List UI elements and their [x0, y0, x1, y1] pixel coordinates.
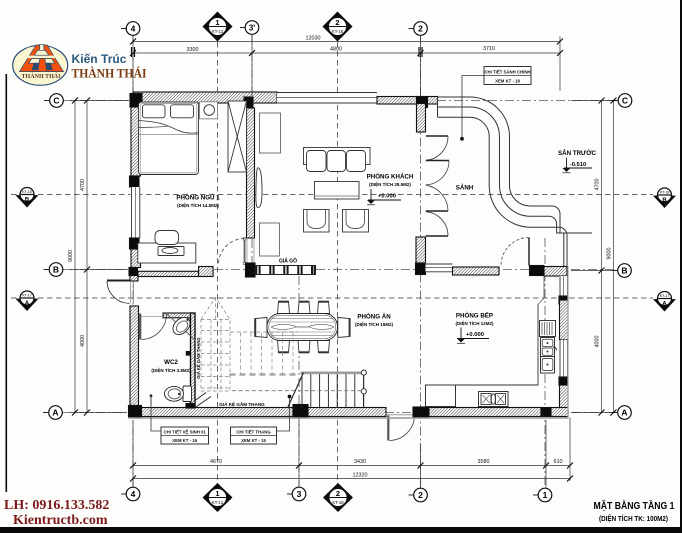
- svg-text:KT-18: KT-18: [332, 500, 344, 505]
- svg-text:Kientructb.com: Kientructb.com: [13, 513, 108, 528]
- svg-text:MẶT BẰNG TẦNG 1: MẶT BẰNG TẦNG 1: [594, 499, 675, 512]
- svg-text:(DIỆN TÍCH 12M2): (DIỆN TÍCH 12M2): [455, 319, 494, 326]
- svg-text:Kiến Trúc: Kiến Trúc: [72, 54, 128, 66]
- svg-text:4800: 4800: [330, 47, 342, 53]
- svg-text:2: 2: [336, 489, 340, 498]
- svg-text:(DIỆN TÍCH 28.5M2): (DIỆN TÍCH 28.5M2): [369, 180, 411, 187]
- svg-text:4000: 4000: [595, 336, 601, 348]
- svg-text:SẢNH: SẢNH: [456, 185, 474, 192]
- svg-text:4700: 4700: [595, 179, 601, 191]
- svg-text:GIÁ KỆ GẦM THANG: GIÁ KỆ GẦM THANG: [196, 337, 201, 378]
- svg-text:B: B: [621, 266, 627, 276]
- svg-text:4700: 4700: [80, 179, 86, 191]
- svg-text:KT-17: KT-17: [22, 293, 32, 297]
- svg-text:1: 1: [215, 489, 219, 498]
- svg-text:SÂN TRƯỚC: SÂN TRƯỚC: [558, 149, 596, 157]
- svg-text:3580: 3580: [478, 459, 490, 465]
- svg-text:XEM KT - 16: XEM KT - 16: [172, 438, 197, 443]
- svg-text:B: B: [662, 197, 666, 203]
- svg-text:PHÒNG ĂN: PHÒNG ĂN: [357, 313, 391, 321]
- svg-text:4: 4: [131, 489, 136, 499]
- svg-text:THÀNH THÁI: THÀNH THÁI: [72, 66, 147, 81]
- svg-text:12320: 12320: [353, 473, 368, 479]
- svg-text:610: 610: [554, 459, 563, 465]
- svg-text:B: B: [53, 265, 59, 275]
- svg-text:KT-18: KT-18: [332, 29, 344, 34]
- svg-text:THÀNH THÁI: THÀNH THÁI: [22, 72, 62, 80]
- svg-text:KT-17: KT-17: [660, 294, 670, 298]
- svg-text:A: A: [52, 408, 58, 418]
- svg-text:2: 2: [418, 24, 423, 34]
- svg-text:4: 4: [131, 24, 136, 34]
- svg-text:GIÁ GỖ: GIÁ GỖ: [279, 258, 297, 265]
- svg-text:A: A: [621, 408, 627, 418]
- svg-text:C: C: [53, 96, 59, 106]
- svg-text:C: C: [622, 96, 628, 106]
- svg-text:1: 1: [543, 490, 548, 500]
- svg-text:(DIỆN TÍCH 3.8M2): (DIỆN TÍCH 3.8M2): [151, 366, 191, 373]
- svg-text:(DIỆN TÍCH TK: 100M2): (DIỆN TÍCH TK: 100M2): [599, 514, 669, 523]
- svg-text:(DIỆN TÍCH 14.5M2): (DIỆN TÍCH 14.5M2): [177, 201, 219, 208]
- svg-text:2: 2: [418, 490, 423, 500]
- svg-text:CHI TIẾT THANG: CHI TIẾT THANG: [236, 429, 271, 434]
- svg-text:B: B: [25, 197, 29, 203]
- svg-text:+0.000: +0.000: [378, 194, 396, 200]
- svg-text:XEM KT - 15: XEM KT - 15: [241, 438, 266, 443]
- svg-text:4000: 4000: [80, 335, 86, 347]
- svg-text:1: 1: [215, 18, 219, 27]
- svg-text:4670: 4670: [210, 459, 222, 465]
- svg-text:PHÒNG KHÁCH: PHÒNG KHÁCH: [367, 173, 414, 181]
- svg-text:9000: 9000: [68, 250, 74, 262]
- svg-text:KT-18: KT-18: [660, 190, 670, 194]
- svg-text:3': 3': [249, 24, 255, 33]
- svg-text:+0.000: +0.000: [466, 332, 484, 338]
- svg-text:PHÒNG BẾP: PHÒNG BẾP: [456, 312, 493, 320]
- svg-text:9000: 9000: [607, 248, 613, 260]
- svg-text:KT-13: KT-13: [212, 500, 224, 505]
- svg-text:XEM KT - 18: XEM KT - 18: [495, 78, 520, 83]
- svg-text:GIÁ KỆ GẦM THANG: GIÁ KỆ GẦM THANG: [219, 400, 265, 407]
- svg-text:3: 3: [297, 489, 302, 499]
- svg-text:(DIỆN TÍCH 15M2): (DIỆN TÍCH 15M2): [355, 320, 394, 327]
- svg-text:3710: 3710: [483, 46, 495, 52]
- svg-text:-0.510: -0.510: [570, 162, 586, 168]
- svg-text:WC2: WC2: [164, 359, 178, 366]
- svg-text:PHÒNG NGỦ 1: PHÒNG NGỦ 1: [176, 194, 220, 202]
- svg-text:2: 2: [335, 18, 339, 27]
- svg-text:3300: 3300: [187, 47, 199, 53]
- svg-text:LH: 0916.133.582: LH: 0916.133.582: [4, 498, 109, 513]
- svg-text:3430: 3430: [354, 459, 366, 465]
- svg-text:CHI TIẾT SẢNH CHÍNH: CHI TIẾT SẢNH CHÍNH: [484, 69, 530, 74]
- svg-text:KT-18: KT-18: [22, 190, 32, 194]
- svg-text:CHI TIẾT VỆ SINH 01: CHI TIẾT VỆ SINH 01: [164, 429, 207, 434]
- svg-text:12030: 12030: [306, 36, 321, 42]
- svg-text:KT-13: KT-13: [212, 29, 224, 34]
